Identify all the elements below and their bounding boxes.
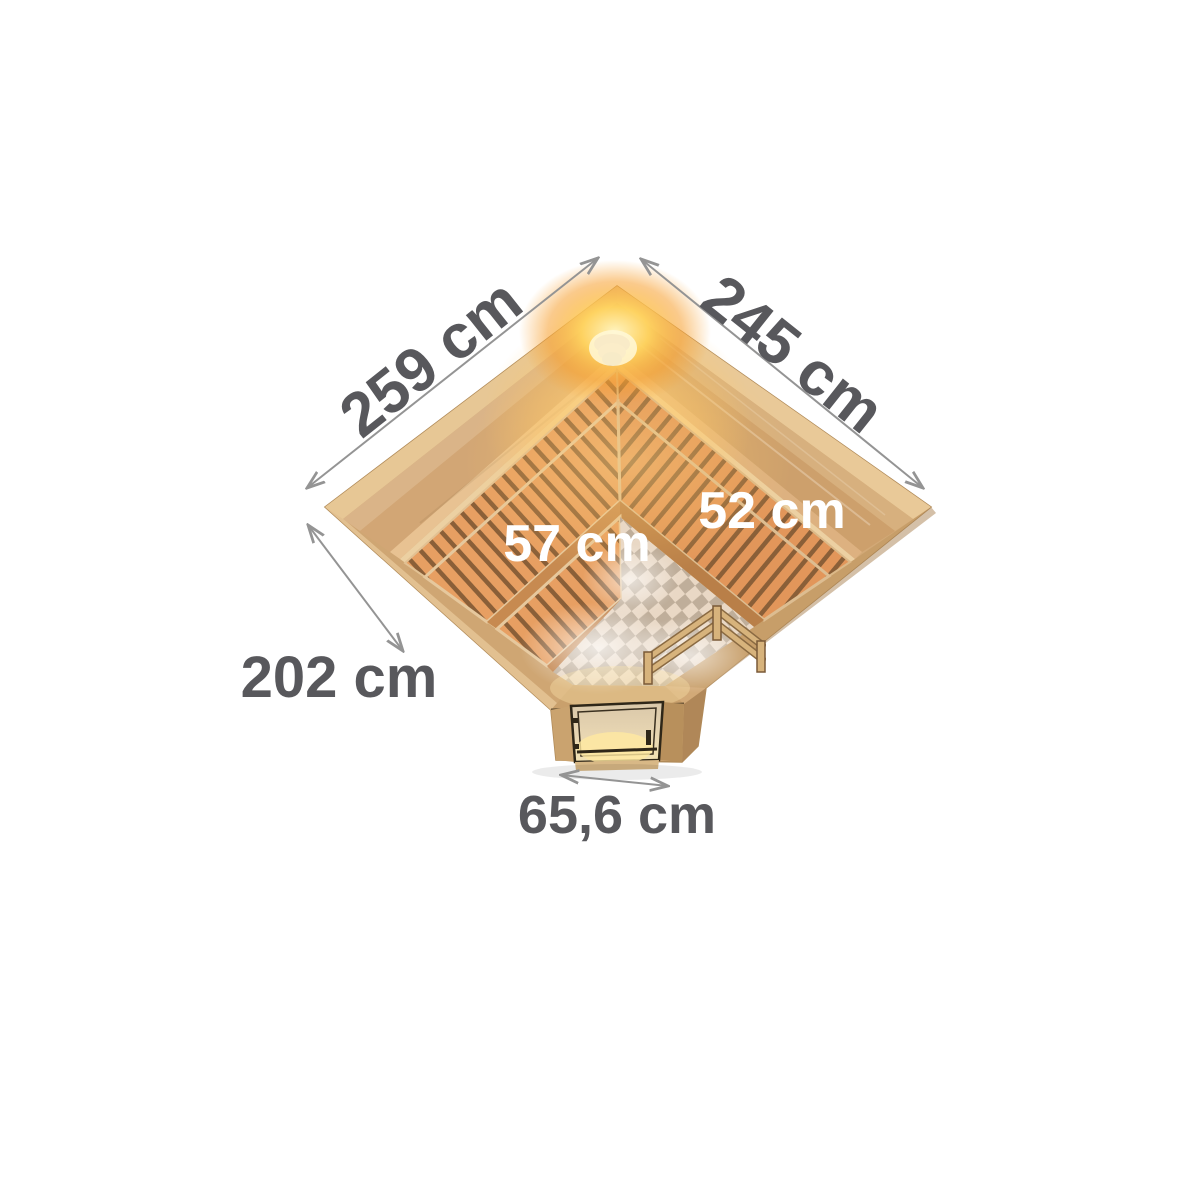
- sauna-dimension-diagram: 259 cm 245 cm 202 cm 65,6 cm 52 cm 57 cm: [0, 0, 1200, 1200]
- door: [532, 702, 702, 780]
- door-hinge: [573, 744, 579, 749]
- corner-light: [519, 260, 711, 404]
- dimension-label-202: 202 cm: [241, 645, 438, 710]
- door-hinge: [572, 718, 578, 723]
- bench-label-52: 52 cm: [698, 482, 845, 540]
- door-handle: [646, 730, 651, 745]
- door-shadow: [532, 764, 702, 780]
- screenshot-root: 259 cm 245 cm 202 cm 65,6 cm 52 cm 57 cm: [0, 0, 1200, 1200]
- dimension-label-656: 65,6 cm: [518, 785, 716, 845]
- bench-label-57: 57 cm: [503, 515, 650, 573]
